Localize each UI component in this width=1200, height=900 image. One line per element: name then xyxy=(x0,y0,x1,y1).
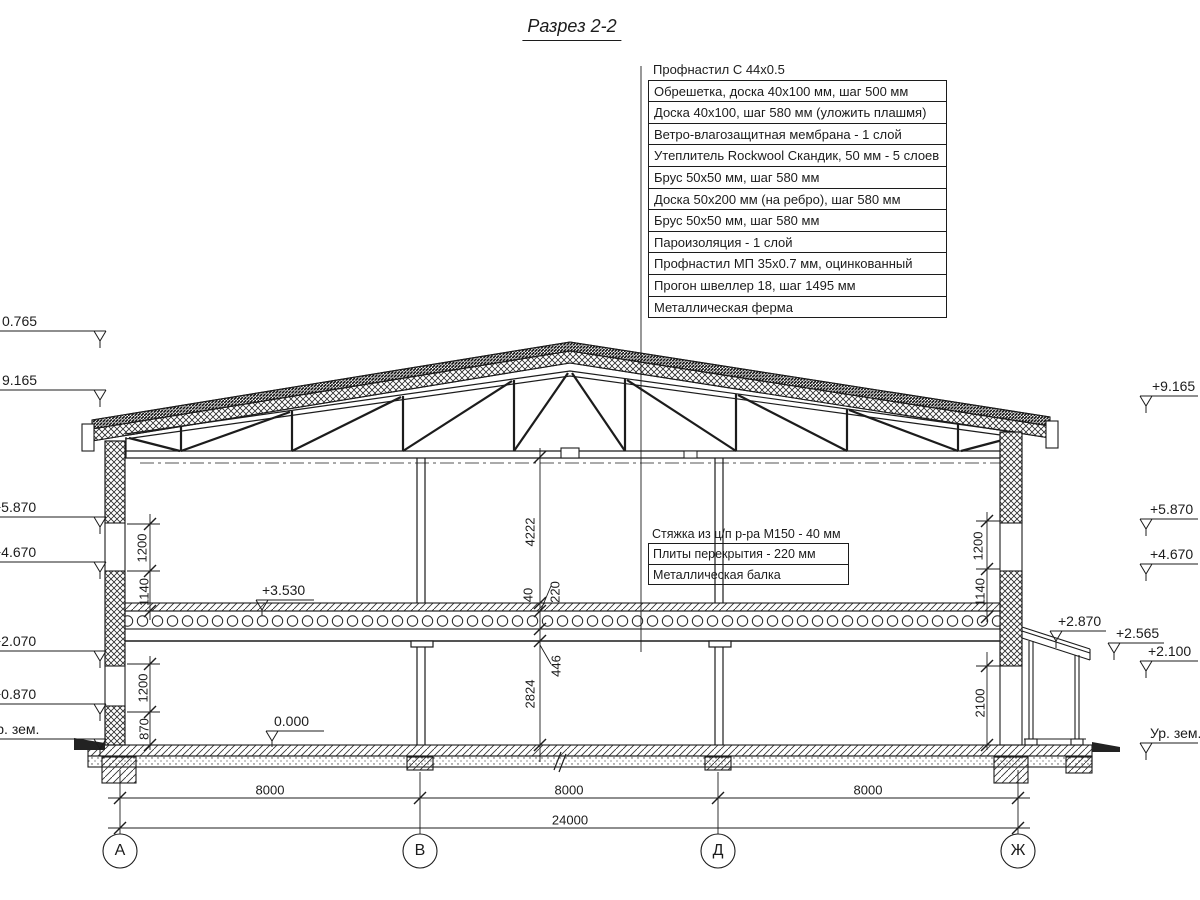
callout-row: Металлическая ферма xyxy=(648,297,947,319)
drawing-title: Разрез 2-2 xyxy=(522,16,621,41)
hollow-core-slab xyxy=(125,611,1000,629)
callout-row: Металлическая балка xyxy=(648,565,849,585)
dim-label: 2100 xyxy=(973,689,988,718)
elevation-label: +4.670 xyxy=(0,544,36,560)
dim-label: 1140 xyxy=(137,578,152,606)
callout-row: Профнастил МП 35х0.7 мм, оцинкованный xyxy=(648,253,947,275)
elevation-label: +2.870 xyxy=(1058,613,1101,629)
elevation-label: +5.870 xyxy=(1150,501,1193,517)
callout-row: Брус 50х50 мм, шаг 580 мм xyxy=(648,167,947,189)
roof-layers-callout: Профнастил С 44х0.5 Обрешетка, доска 40х… xyxy=(648,59,947,318)
elevation-label: +2.100 xyxy=(1148,643,1191,659)
left-fascia xyxy=(82,424,94,451)
level-label: +3.530 xyxy=(262,582,305,598)
callout-row: Доска 50х200 мм (на ребро), шаг 580 мм xyxy=(648,189,947,211)
elevation-label: +5.870 xyxy=(0,499,36,515)
dim-label: 446 xyxy=(549,655,564,677)
total-span-label: 24000 xyxy=(552,813,588,828)
callout-row: Профнастил С 44х0.5 xyxy=(648,59,947,81)
ground-level-label: Ур. зем. xyxy=(1150,725,1200,741)
chord-plate xyxy=(684,451,697,458)
screed xyxy=(125,603,1000,611)
callout-row: Обрешетка, доска 40х100 мм, шаг 500 мм xyxy=(648,81,947,103)
elevation-label: +2.565 xyxy=(1116,625,1159,641)
level-label: 0.000 xyxy=(274,713,309,729)
floor-slab xyxy=(125,603,1000,641)
blind-area-right xyxy=(1092,742,1120,752)
elevation-label: +4.670 xyxy=(1150,546,1193,562)
axis-label-a: А xyxy=(115,842,126,860)
callout-row: Плиты перекрытия - 220 мм xyxy=(648,544,849,564)
callout-row: Доска 40х100, шаг 580 мм (уложить плашмя… xyxy=(648,102,947,124)
elevation-label: +2.070 xyxy=(0,633,36,649)
dim-label: 1140 xyxy=(973,578,988,606)
callout-row: Брус 50х50 мм, шаг 580 мм xyxy=(648,210,947,232)
callout-row: Стяжка из ц/п р-ра М150 - 40 мм xyxy=(648,524,849,544)
right-fascia xyxy=(1046,421,1058,448)
foundation-left xyxy=(102,757,136,783)
left-wall xyxy=(105,441,125,745)
callout-row: Ветро-влагозащитная мембрана - 1 слой xyxy=(648,124,947,146)
dim-label: 870 xyxy=(137,718,152,740)
elev-right xyxy=(1050,396,1198,760)
callout-row: Пароизоляция - 1 слой xyxy=(648,232,947,254)
axis-label-d: Д xyxy=(713,842,724,860)
right-wall xyxy=(1000,432,1022,745)
dim-label: 1200 xyxy=(136,674,151,703)
callout-row: Утеплитель Rockwool Скандик, 50 мм - 5 с… xyxy=(648,145,947,167)
dim-label: 1200 xyxy=(135,534,150,563)
dim-label: 40 xyxy=(521,588,536,602)
ground-floor xyxy=(74,738,1120,783)
elevation-label: +9.165 xyxy=(1152,378,1195,394)
columns xyxy=(411,458,731,745)
ground-level-label: Ур. зем. xyxy=(0,721,39,737)
section-drawing xyxy=(0,0,1200,900)
foundation-right xyxy=(994,757,1028,783)
metal-truss xyxy=(125,371,1015,463)
drawing-sheet: Разрез 2-2 Профнастил С 44х0.5 Обрешетка… xyxy=(0,0,1200,900)
span-label: 8000 xyxy=(256,783,285,798)
floor-layers-callout: Стяжка из ц/п р-ра М150 - 40 мм Плиты пе… xyxy=(648,524,849,585)
elevation-label: 0.765 xyxy=(2,313,37,329)
callout-row: Прогон швеллер 18, шаг 1495 мм xyxy=(648,275,947,297)
span-label: 8000 xyxy=(555,783,584,798)
dim-label: 4222 xyxy=(523,518,538,547)
elevation-label: 9.165 xyxy=(2,372,37,388)
axis-label-zh: Ж xyxy=(1011,842,1026,860)
dim-label: 1200 xyxy=(971,532,986,561)
chord-plate xyxy=(561,448,579,458)
dim-label: 2824 xyxy=(523,680,538,709)
span-label: 8000 xyxy=(854,783,883,798)
axis-bubbles xyxy=(103,834,1035,868)
elevation-label: +0.870 xyxy=(0,686,36,702)
axis-label-b: В xyxy=(415,842,426,860)
dim-label: 220 xyxy=(548,581,563,603)
